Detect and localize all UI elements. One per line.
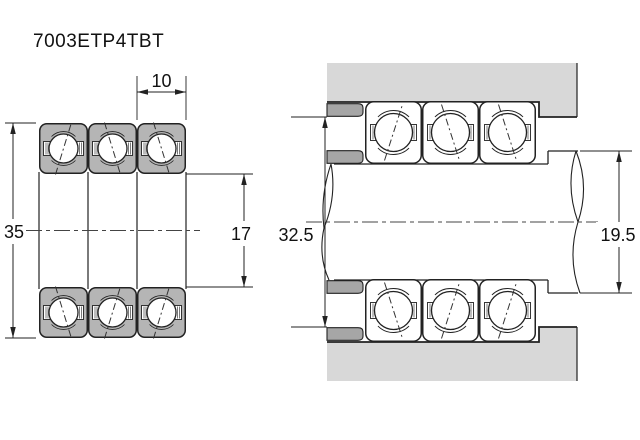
bearing-unit (366, 102, 422, 164)
front-view (26, 123, 200, 339)
dimension-label-bore: 17 (231, 224, 251, 244)
bearing-unit (480, 102, 536, 164)
dimension-width: 10 (137, 71, 186, 120)
bearing-unit (480, 280, 536, 342)
dimension-label-shaft-shoulder: 19.5 (600, 225, 635, 245)
inner-spacer (327, 281, 363, 294)
dimension-label-housing-shoulder: 32.5 (278, 225, 313, 245)
mounting-view (306, 63, 598, 381)
bearing-unit (423, 280, 479, 342)
bearing-unit (40, 124, 88, 174)
dimension-label-outer-diameter: 35 (4, 222, 24, 242)
bearing-unit (89, 124, 137, 174)
bearing-unit (366, 280, 422, 342)
bearing-drawing-page: 7003ETP4TBT (0, 0, 640, 440)
outer-spacer (327, 328, 363, 341)
bearing-unit (89, 288, 137, 338)
bearing-drawing: 7003ETP4TBT (0, 0, 640, 440)
inner-spacer (327, 151, 363, 164)
outer-spacer (327, 104, 363, 117)
dimension-label-width: 10 (151, 71, 171, 91)
bearing-unit (138, 124, 186, 174)
bearing-unit (423, 102, 479, 164)
bearing-unit (138, 288, 186, 338)
bearing-unit (40, 288, 88, 338)
part-number: 7003ETP4TBT (33, 31, 164, 52)
